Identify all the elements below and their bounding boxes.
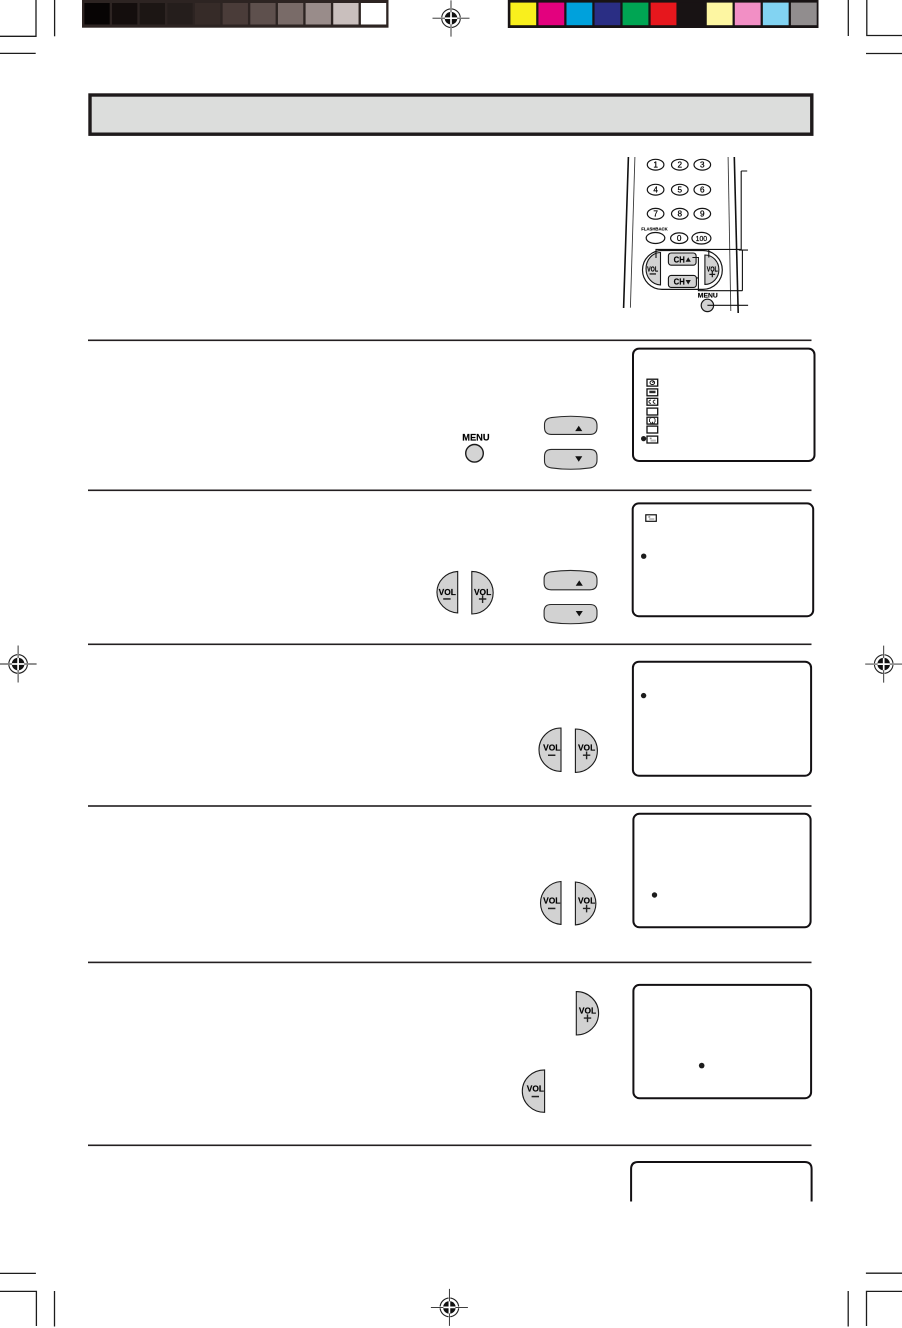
svg-text:VOL: VOL: [543, 742, 560, 752]
svg-text:6: 6: [700, 185, 705, 194]
svg-text:CH: CH: [674, 278, 685, 287]
svg-text:5: 5: [678, 185, 683, 194]
svg-text:VOL: VOL: [543, 896, 560, 906]
svg-text:2: 2: [678, 160, 683, 169]
svg-text:VOL: VOL: [579, 1005, 596, 1015]
svg-text:MENU: MENU: [462, 433, 490, 443]
svg-text:7: 7: [653, 210, 658, 219]
svg-text:MENU: MENU: [698, 292, 718, 299]
svg-text:1: 1: [653, 161, 658, 170]
svg-text:VOL: VOL: [439, 587, 456, 597]
svg-text:100: 100: [696, 236, 708, 243]
svg-text:4: 4: [653, 185, 658, 194]
svg-text:VOL: VOL: [578, 742, 595, 752]
svg-text:FLASHBACK: FLASHBACK: [641, 226, 668, 231]
svg-text:VOL: VOL: [647, 264, 658, 273]
svg-text:8: 8: [678, 210, 683, 219]
svg-text:3: 3: [700, 160, 705, 169]
svg-text:VOL: VOL: [578, 896, 595, 906]
svg-text:VOL: VOL: [527, 1084, 544, 1094]
svg-text:CH: CH: [674, 255, 685, 264]
svg-text:9: 9: [700, 210, 705, 219]
svg-text:0: 0: [677, 234, 682, 243]
